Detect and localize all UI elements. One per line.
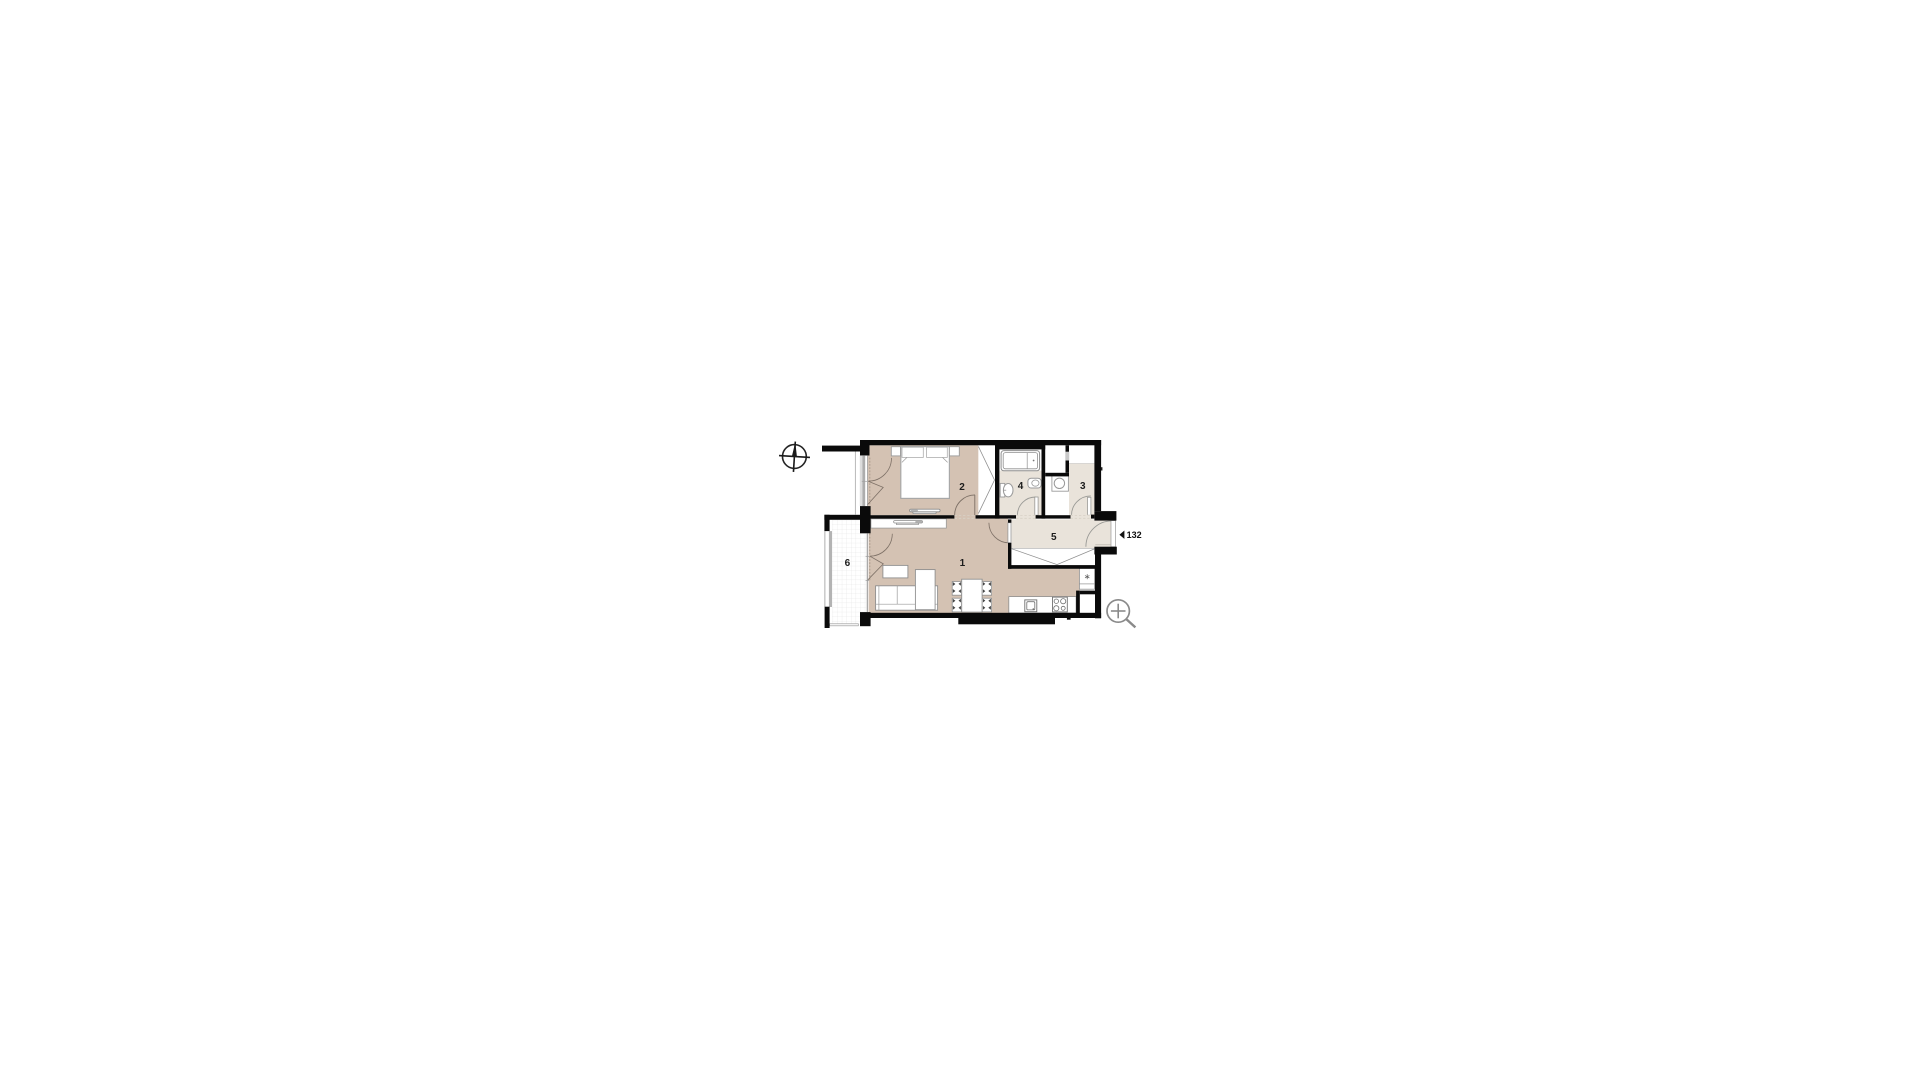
svg-text:2: 2 (959, 482, 965, 493)
svg-text:1: 1 (960, 558, 966, 569)
svg-text:3: 3 (1080, 481, 1086, 492)
svg-text:132: 132 (1127, 530, 1142, 540)
svg-text:6: 6 (845, 558, 851, 569)
svg-text:4: 4 (1018, 481, 1024, 492)
svg-text:5: 5 (1051, 532, 1057, 543)
